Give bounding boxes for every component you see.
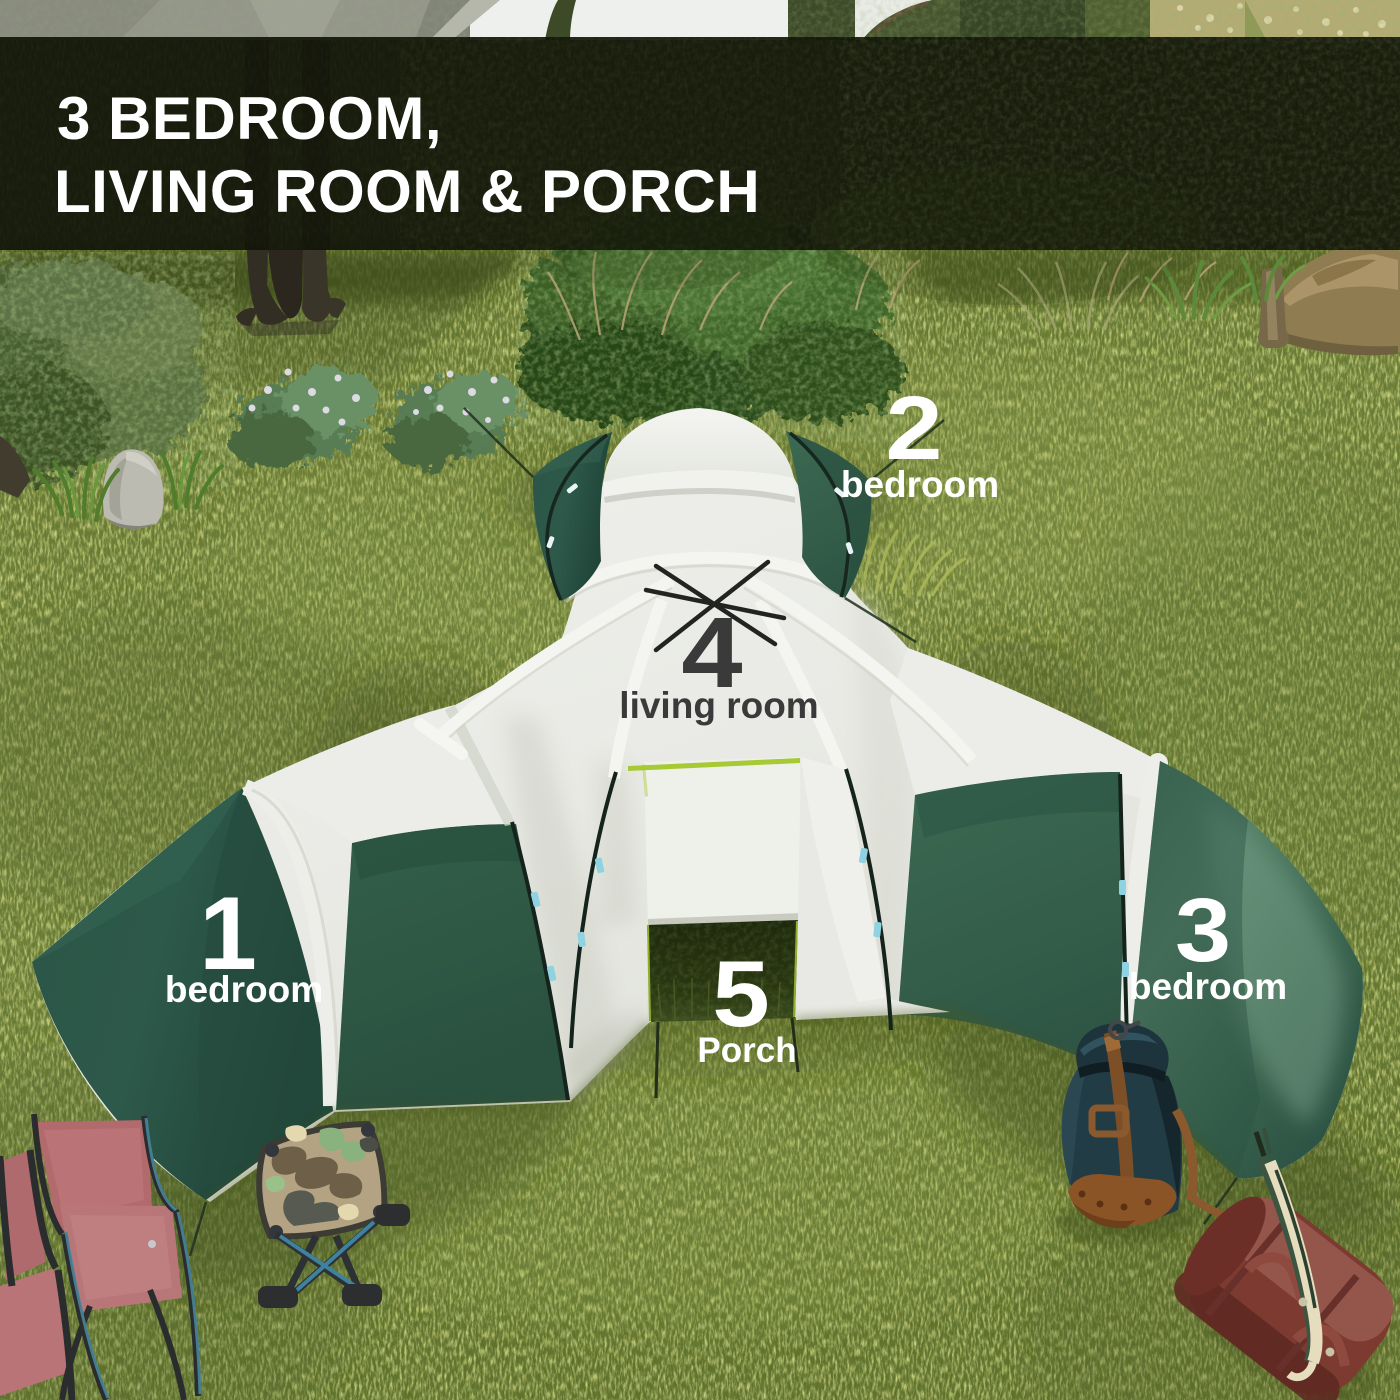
svg-text:bedroom: bedroom <box>165 969 323 1010</box>
svg-text:bedroom: bedroom <box>1129 966 1287 1007</box>
svg-text:living room: living room <box>619 685 818 726</box>
svg-text:3 BEDROOM,: 3 BEDROOM, <box>57 85 442 152</box>
svg-text:bedroom: bedroom <box>841 464 999 505</box>
svg-text:Porch: Porch <box>697 1031 796 1070</box>
svg-text:LIVING ROOM & PORCH: LIVING ROOM & PORCH <box>54 158 760 225</box>
